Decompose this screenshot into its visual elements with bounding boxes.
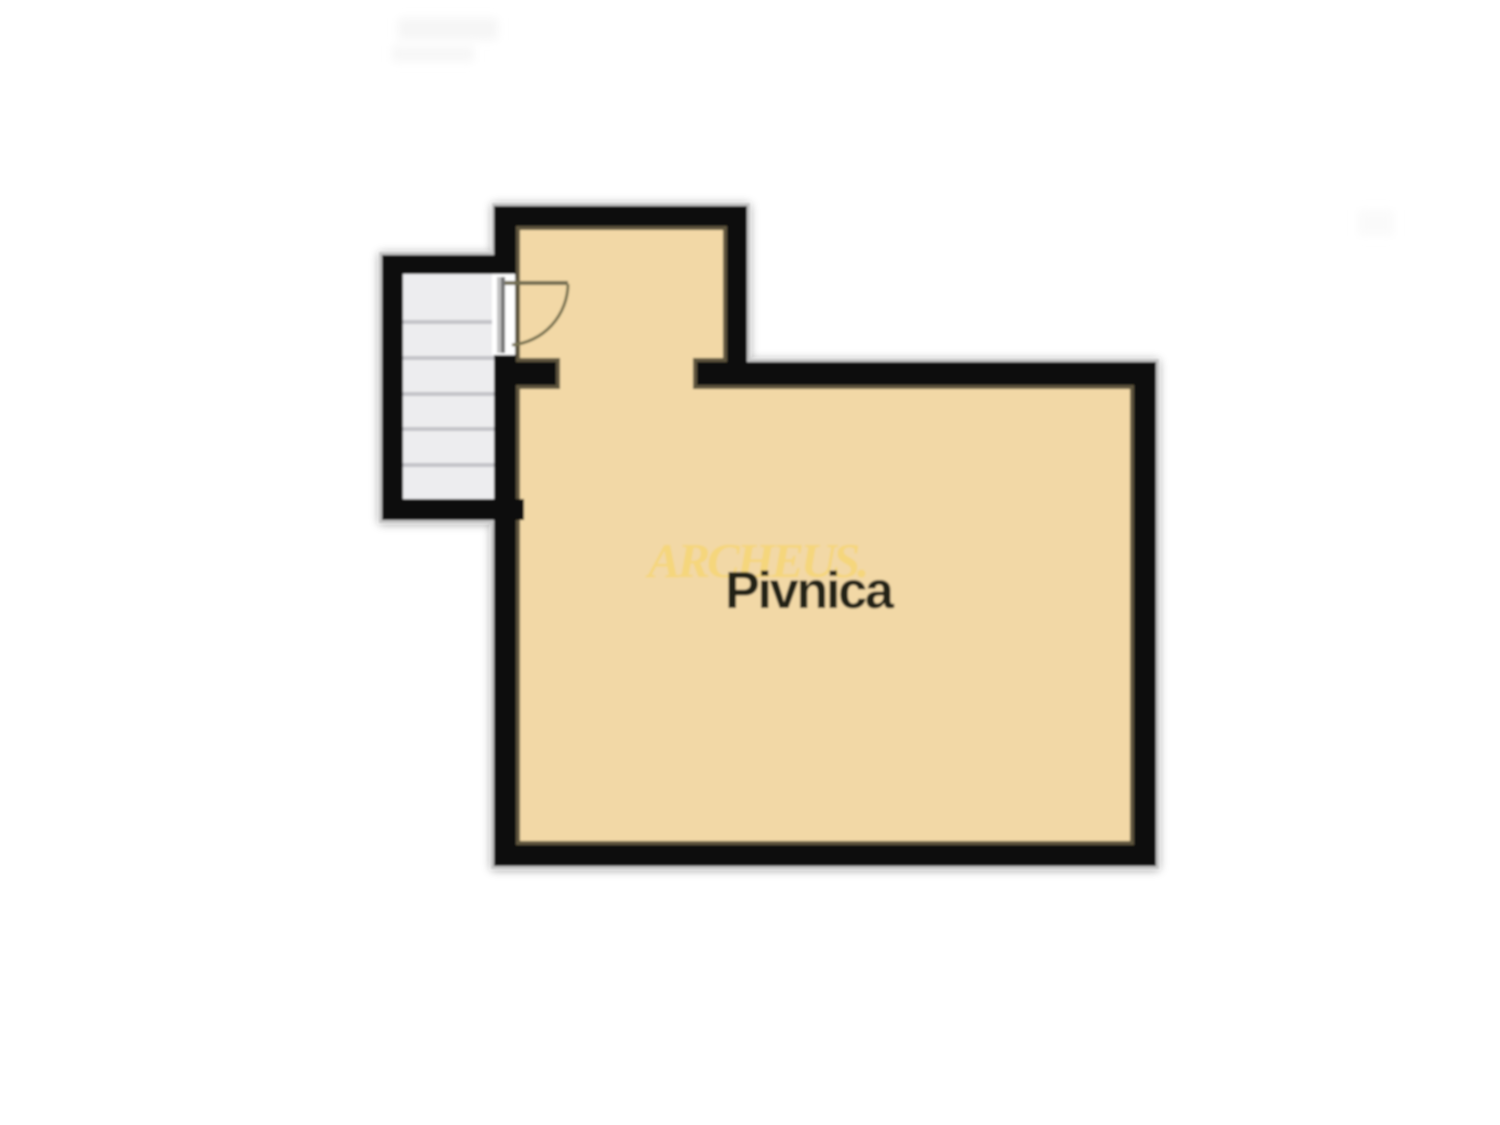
svg-text:Pivnica: Pivnica bbox=[725, 562, 895, 620]
